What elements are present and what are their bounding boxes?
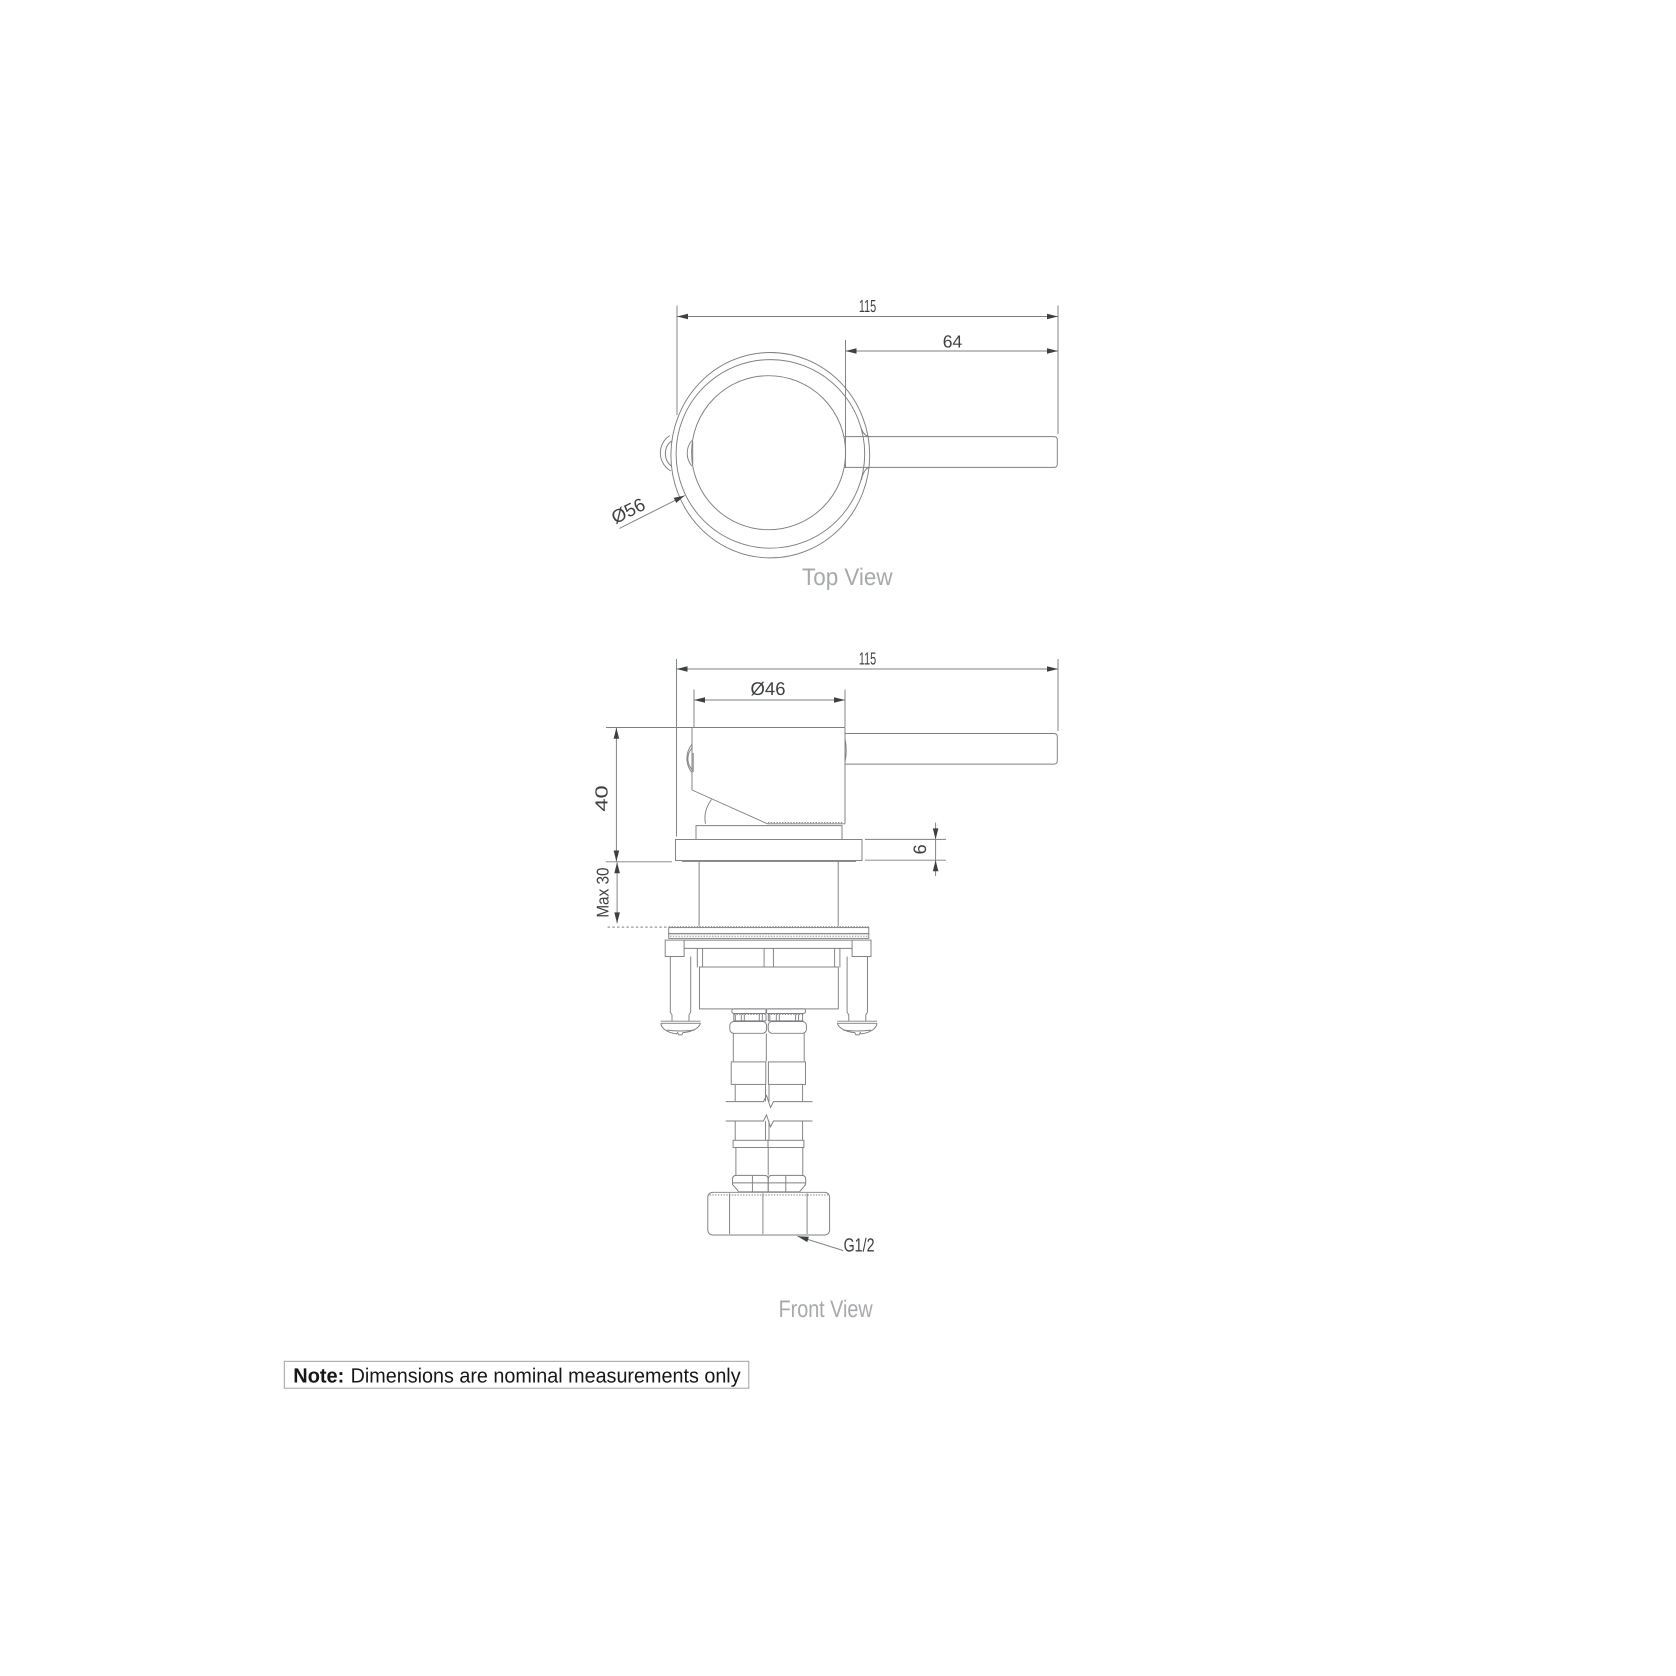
svg-text:Front View: Front View [779, 1296, 874, 1323]
svg-text:Note:: Note: [293, 1364, 344, 1387]
svg-text:G1/2: G1/2 [844, 1235, 875, 1256]
svg-text:115: 115 [859, 648, 876, 668]
svg-text:64: 64 [943, 332, 963, 352]
svg-text:Ø46: Ø46 [751, 678, 786, 699]
svg-text:40: 40 [592, 785, 612, 812]
svg-text:115: 115 [859, 296, 876, 316]
svg-text:Top View: Top View [802, 564, 893, 591]
svg-text:Max 30: Max 30 [594, 868, 613, 918]
svg-text:Dimensions are nominal measure: Dimensions are nominal measurements only [351, 1364, 742, 1387]
svg-text:6: 6 [910, 844, 930, 854]
svg-text:Ø56: Ø56 [608, 493, 649, 527]
